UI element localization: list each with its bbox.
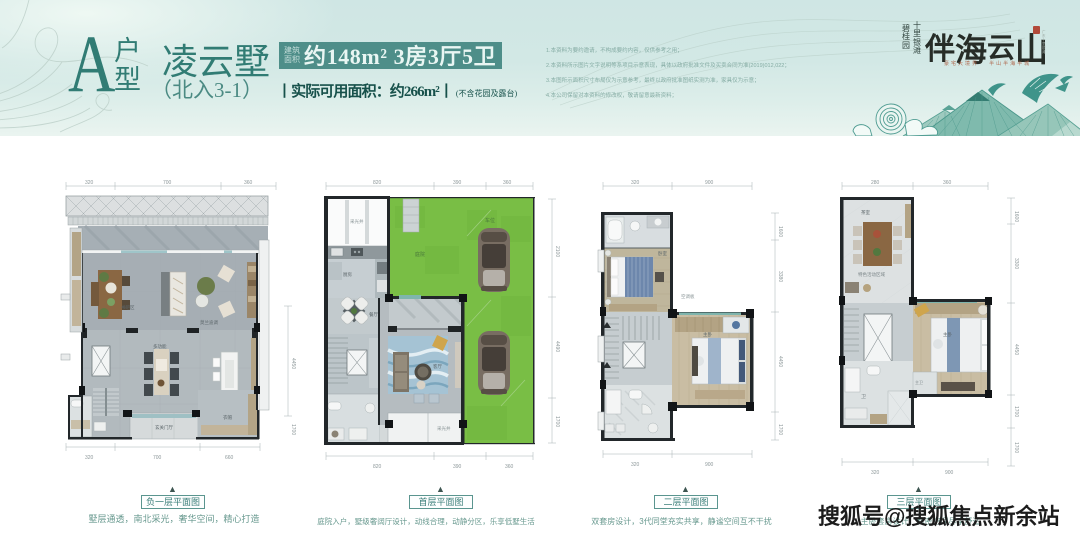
svg-text:4490: 4490	[554, 341, 560, 352]
svg-text:主卧: 主卧	[703, 331, 712, 338]
svg-text:360: 360	[943, 180, 952, 186]
svg-text:主卧: 主卧	[943, 331, 952, 338]
svg-text:390: 390	[453, 180, 462, 186]
svg-text:320: 320	[631, 180, 640, 186]
svg-text:3300: 3300	[1013, 258, 1019, 269]
svg-text:1700: 1700	[777, 424, 783, 435]
svg-text:360: 360	[503, 180, 512, 186]
svg-text:320: 320	[85, 455, 94, 461]
svg-text:320: 320	[871, 470, 880, 476]
svg-text:700: 700	[153, 455, 162, 461]
svg-text:900: 900	[705, 180, 714, 186]
svg-text:多功能: 多功能	[153, 343, 167, 350]
svg-text:厨房: 厨房	[343, 271, 352, 278]
svg-text:320: 320	[631, 462, 640, 468]
svg-text:2100: 2100	[554, 246, 560, 257]
svg-text:1700: 1700	[1013, 406, 1019, 417]
svg-text:采光井: 采光井	[437, 425, 451, 432]
svg-text:莫兰迪调: 莫兰迪调	[200, 319, 218, 326]
svg-text:餐厅: 餐厅	[369, 311, 378, 318]
svg-text:700: 700	[163, 180, 172, 186]
svg-text:1700: 1700	[1013, 442, 1019, 453]
svg-text:660: 660	[225, 455, 234, 461]
svg-text:4450: 4450	[1013, 344, 1019, 355]
svg-text:书吧区: 书吧区	[121, 304, 135, 311]
svg-text:4450: 4450	[290, 358, 296, 369]
svg-text:1700: 1700	[554, 416, 560, 427]
svg-text:280: 280	[871, 180, 880, 186]
svg-text:客厅: 客厅	[433, 363, 442, 370]
svg-text:玄关门厅: 玄关门厅	[155, 424, 173, 431]
svg-text:特色活动区域: 特色活动区域	[858, 271, 885, 278]
svg-text:采光井: 采光井	[350, 218, 364, 225]
svg-text:1600: 1600	[1013, 211, 1019, 222]
svg-text:360: 360	[244, 180, 253, 186]
svg-text:庭院: 庭院	[415, 251, 425, 258]
svg-text:360: 360	[505, 464, 514, 468]
svg-text:900: 900	[945, 470, 954, 476]
svg-text:主卫: 主卫	[915, 379, 923, 385]
svg-text:320: 320	[85, 180, 94, 186]
svg-text:卧室: 卧室	[658, 250, 667, 257]
svg-text:1600: 1600	[777, 226, 783, 237]
svg-text:900: 900	[705, 462, 714, 468]
svg-text:茶室: 茶室	[861, 209, 870, 215]
svg-text:390: 390	[453, 464, 462, 468]
svg-text:衣帽: 衣帽	[223, 414, 232, 421]
svg-text:3380: 3380	[777, 271, 783, 282]
svg-text:卫: 卫	[861, 394, 866, 400]
svg-text:1700: 1700	[290, 424, 296, 435]
svg-text:820: 820	[373, 464, 382, 468]
svg-text:820: 820	[373, 180, 382, 186]
svg-text:空调板: 空调板	[681, 293, 695, 300]
svg-text:4450: 4450	[777, 356, 783, 367]
svg-text:车位: 车位	[485, 217, 495, 224]
